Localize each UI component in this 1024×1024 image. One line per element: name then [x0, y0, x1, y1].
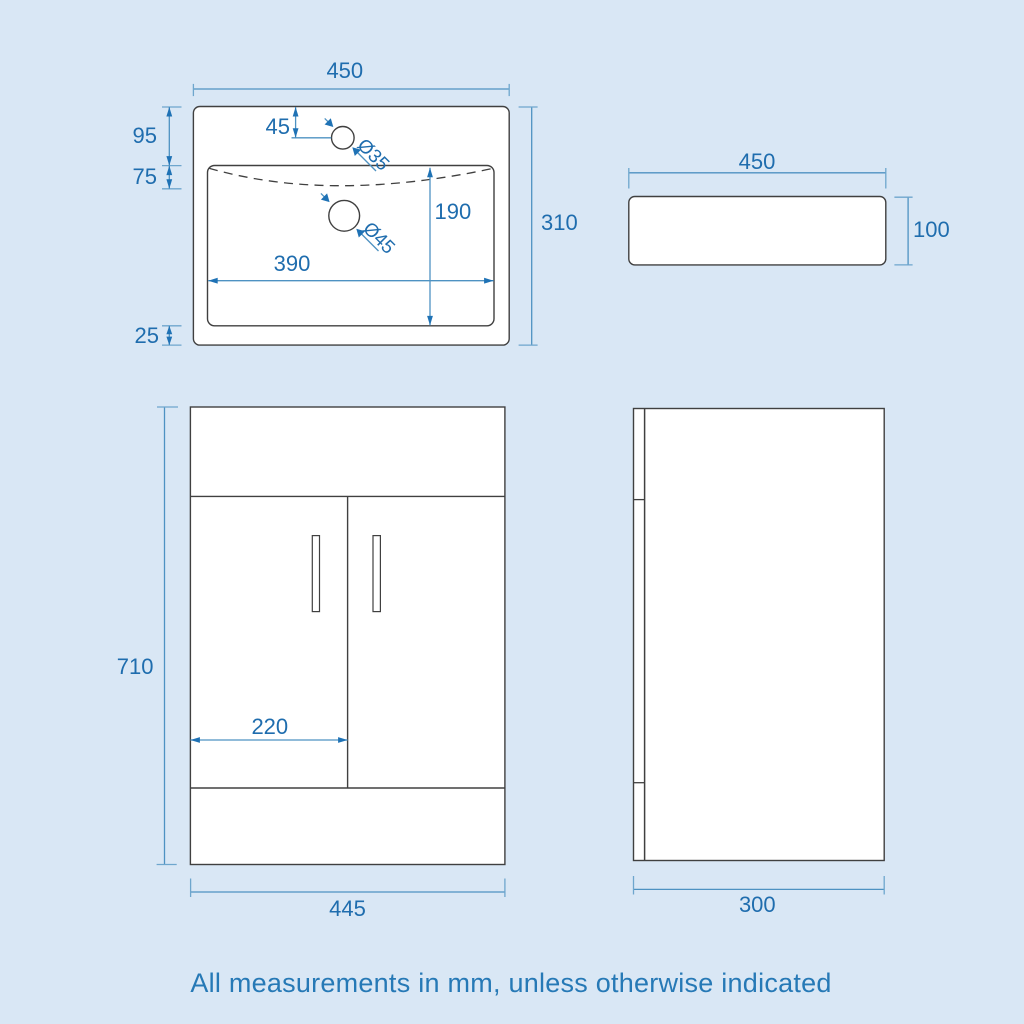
- svg-text:190: 190: [435, 199, 472, 224]
- svg-text:710: 710: [117, 654, 154, 679]
- svg-text:95: 95: [133, 123, 157, 148]
- svg-text:100: 100: [913, 217, 950, 242]
- svg-text:445: 445: [329, 896, 366, 921]
- svg-text:300: 300: [739, 892, 776, 917]
- svg-text:All measurements in mm, unless: All measurements in mm, unless otherwise…: [190, 968, 831, 998]
- svg-text:75: 75: [133, 164, 157, 189]
- svg-text:45: 45: [266, 114, 290, 139]
- svg-text:450: 450: [326, 58, 363, 83]
- svg-text:25: 25: [135, 323, 159, 348]
- svg-text:390: 390: [274, 251, 311, 276]
- svg-text:220: 220: [251, 714, 288, 739]
- svg-text:450: 450: [739, 149, 776, 174]
- svg-text:310: 310: [541, 210, 578, 235]
